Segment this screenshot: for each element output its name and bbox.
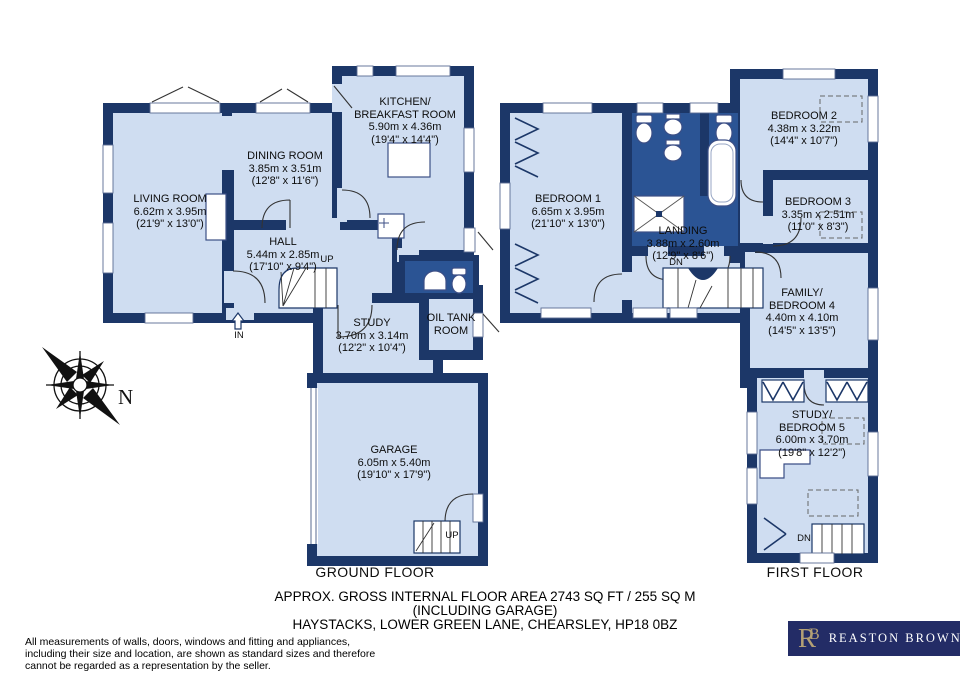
oil-tank-ext-door — [483, 314, 499, 332]
address-line: HAYSTACKS, LOWER GREEN LANE, CHEARSLEY, … — [275, 618, 696, 632]
logo-monogram-b: B — [809, 627, 820, 643]
landing-stairs — [663, 268, 763, 308]
room-name: KITCHEN/ — [354, 96, 456, 109]
room-label-bedroom3: BEDROOM 3 3.35m x 2.51m (11'0" x 8'3") — [782, 196, 855, 234]
room-name: STUDY — [336, 317, 409, 330]
room-dims-metric: 6.05m x 5.40m — [357, 457, 431, 470]
room-dims-imperial: (12'8" x 11'6") — [247, 175, 323, 188]
room-dims-metric: 3.35m x 2.51m — [782, 209, 855, 222]
room-name: LANDING — [647, 225, 720, 238]
stairs-up-label: UP — [445, 530, 458, 541]
stairs-down-label: DN — [669, 257, 683, 268]
first-floor-title: FIRST FLOOR — [767, 564, 864, 580]
room-name: BEDROOM 3 — [782, 196, 855, 209]
compass-north-label: N — [118, 385, 133, 410]
room-label-oil-tank-room: OIL TANK ROOM — [427, 312, 476, 337]
room-dims-metric: 6.00m x 3.70m — [776, 434, 849, 447]
room-dims-metric: 4.40m x 4.10m — [766, 312, 839, 325]
room-label-living-room: LIVING ROOM 6.62m x 3.95m (21'9" x 13'0"… — [133, 193, 206, 231]
footer-summary: APPROX. GROSS INTERNAL FLOOR AREA 2743 S… — [275, 590, 696, 631]
room-name: ROOM — [427, 325, 476, 338]
room-label-garage: GARAGE 6.05m x 5.40m (19'10" x 17'9") — [357, 444, 431, 482]
room-label-hall: HALL 5.44m x 2.85m (17'10" x 9'4") — [247, 236, 320, 274]
entrance-in-label: IN — [234, 330, 244, 341]
sink-icon — [666, 114, 680, 119]
room-name: HALL — [247, 236, 320, 249]
toilet-icon — [636, 115, 652, 123]
reaston-brown-logo: R B REASTON BROWN — [788, 621, 960, 656]
room-name: DINING ROOM — [247, 150, 323, 163]
disclaimer-line: cannot be regarded as a representation b… — [25, 660, 375, 672]
logo-name: REASTON BROWN — [829, 631, 962, 646]
room-label-bedroom2: BEDROOM 2 4.38m x 3.22m (14'4" x 10'7") — [768, 110, 841, 148]
room-dims-imperial: (12'2" x 10'4") — [336, 342, 409, 355]
room-name: STUDY/ — [776, 409, 849, 422]
room-dims-metric: 3.70m x 3.14m — [336, 330, 409, 343]
floorplan-page: LIVING ROOM 6.62m x 3.95m (21'9" x 13'0"… — [0, 0, 980, 692]
ground-floor-title: GROUND FLOOR — [315, 564, 434, 580]
wc-sink — [424, 271, 446, 290]
roof-chevrons — [152, 87, 308, 102]
room-name: BREAKFAST ROOM — [354, 109, 456, 122]
disclaimer-line: All measurements of walls, doors, window… — [25, 636, 375, 648]
room-dims-imperial: (21'9" x 13'0") — [133, 218, 206, 231]
room-dims-metric: 4.38m x 3.22m — [768, 123, 841, 136]
disclaimer-text: All measurements of walls, doors, window… — [25, 636, 375, 673]
room-dims-imperial: (19'8" x 12'2") — [776, 447, 849, 460]
room-name: BEDROOM 2 — [768, 110, 841, 123]
room-dims-imperial: (14'5" x 13'5") — [766, 325, 839, 338]
room-dims-metric: 6.65m x 3.95m — [531, 206, 605, 219]
room-dims-imperial: (11'0" x 8'3") — [782, 221, 855, 234]
kitchen-island — [388, 143, 430, 177]
room-dims-imperial: (19'10" x 17'9") — [357, 469, 431, 482]
room-dims-metric: 3.88m x 2.60m — [647, 238, 720, 251]
room-dims-imperial: (17'10" x 9'4") — [247, 261, 320, 274]
room-name: OIL TANK — [427, 312, 476, 325]
room-name: FAMILY/ — [766, 287, 839, 300]
bathtub-icon — [708, 140, 736, 206]
fireplace — [206, 194, 226, 240]
room-dims-metric: 3.85m x 3.51m — [247, 163, 323, 176]
room-dims-metric: 6.62m x 3.95m — [133, 206, 206, 219]
stairs-down-label: DN — [797, 533, 811, 544]
logo-monogram: R B — [798, 625, 820, 652]
wc-toilet — [452, 268, 466, 275]
toilet-icon — [716, 115, 732, 123]
room-name: BEDROOM 5 — [776, 422, 849, 435]
room-dims-imperial: (19'4" x 14'4") — [354, 134, 456, 147]
sink-icon — [666, 140, 680, 145]
room-label-bedroom1: BEDROOM 1 6.65m x 3.95m (21'10" x 13'0") — [531, 193, 605, 231]
room-label-study: STUDY 3.70m x 3.14m (12'2" x 10'4") — [336, 317, 409, 355]
including-garage-line: (INCLUDING GARAGE) — [275, 604, 696, 618]
room-name: BEDROOM 4 — [766, 300, 839, 313]
compass-rose-icon — [42, 347, 120, 425]
room-label-bedroom5: STUDY/ BEDROOM 5 6.00m x 3.70m (19'8" x … — [776, 409, 849, 459]
room-label-bedroom4: FAMILY/ BEDROOM 4 4.40m x 4.10m (14'5" x… — [766, 287, 839, 337]
rear-ext-door — [478, 232, 493, 250]
room-dims-imperial: (14'4" x 10'7") — [768, 135, 841, 148]
room-label-dining-room: DINING ROOM 3.85m x 3.51m (12'8" x 11'6"… — [247, 150, 323, 188]
hall-stairs — [279, 268, 337, 308]
room-name: LIVING ROOM — [133, 193, 206, 206]
disclaimer-line: including their size and location, are s… — [25, 648, 375, 660]
room-dims-imperial: (21'10" x 13'0") — [531, 218, 605, 231]
floor-area-line: APPROX. GROSS INTERNAL FLOOR AREA 2743 S… — [275, 590, 696, 604]
stairs-up-label: UP — [320, 254, 333, 265]
room-name: BEDROOM 1 — [531, 193, 605, 206]
room-name: GARAGE — [357, 444, 431, 457]
room-label-kitchen: KITCHEN/ BREAKFAST ROOM 5.90m x 4.36m (1… — [354, 96, 456, 146]
bedroom5-stairs — [812, 524, 864, 554]
room-dims-metric: 5.44m x 2.85m — [247, 249, 320, 262]
room-dims-metric: 5.90m x 4.36m — [354, 121, 456, 134]
